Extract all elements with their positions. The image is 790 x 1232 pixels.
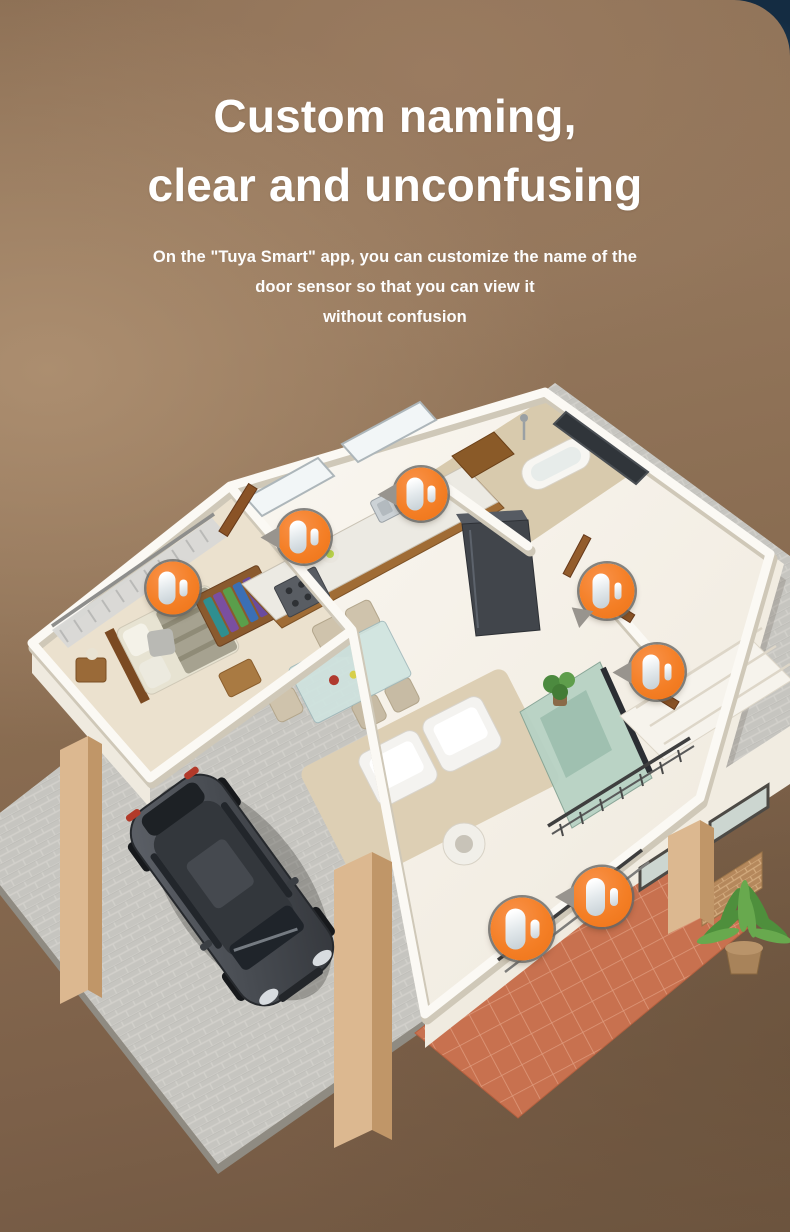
marker-pointer [613, 661, 632, 683]
door-sensor-icon [505, 909, 525, 949]
door-sensor-marker [278, 511, 331, 564]
header: Custom naming, clear and unconfusing On … [0, 0, 790, 332]
door-sensor-magnet-icon [614, 582, 622, 599]
door-sensor-icon [642, 654, 660, 689]
marker-pointer [378, 483, 397, 505]
door-sensor-magnet-icon [664, 663, 672, 680]
subtitle-line-3: without confusion [115, 302, 675, 332]
marker-pointer [261, 526, 280, 548]
house-illustration [0, 378, 790, 1232]
door-sensor-magnet-icon [180, 580, 187, 596]
door-sensor-icon [586, 878, 605, 916]
door-sensor-marker [395, 468, 448, 521]
door-sensor-magnet-icon [530, 919, 539, 939]
door-sensor-marker [147, 562, 200, 615]
page: { "theme": { "accent_orange": "#f47f26",… [0, 0, 790, 1232]
subtitle-line-2: door sensor so that you can view it [115, 272, 675, 302]
door-sensor-icon [407, 477, 424, 511]
door-sensor-marker [630, 645, 685, 700]
promo-panel: Custom naming, clear and unconfusing On … [0, 0, 790, 1232]
page-subtitle: On the "Tuya Smart" app, you can customi… [115, 242, 675, 332]
title-line-1: Custom naming, [0, 82, 790, 151]
page-title: Custom naming, clear and unconfusing [0, 82, 790, 220]
door-sensor-magnet-icon [610, 888, 618, 907]
door-sensor-magnet-icon [428, 486, 435, 502]
door-sensor-icon [159, 571, 176, 605]
subtitle-line-1: On the "Tuya Smart" app, you can customi… [115, 242, 675, 272]
marker-pointer [555, 886, 574, 908]
door-sensor-marker [580, 564, 635, 619]
door-sensor-icon [592, 573, 610, 608]
door-sensor-marker [572, 867, 632, 927]
isometric-house [0, 378, 790, 1232]
door-sensor-marker [491, 898, 554, 961]
title-line-2: clear and unconfusing [0, 151, 790, 220]
door-sensor-icon [290, 520, 307, 554]
door-sensor-magnet-icon [311, 529, 318, 545]
